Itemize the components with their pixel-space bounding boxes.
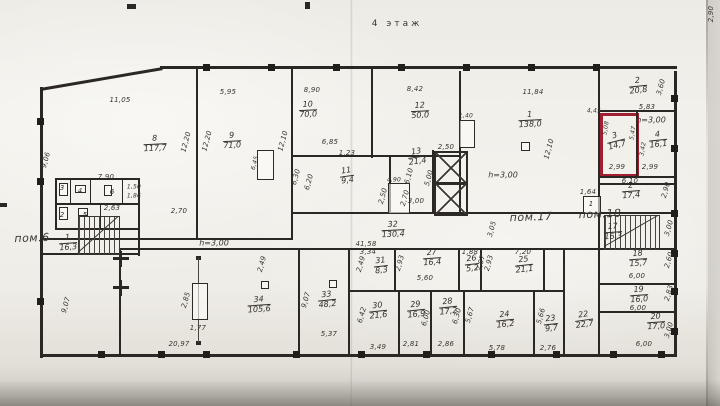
room-label-20: 2017,0: [646, 312, 665, 332]
ceiling-height-label: h=3,00: [199, 239, 229, 248]
wall-segment: [70, 178, 71, 204]
ventilation-shaft: [459, 120, 475, 148]
small-room-number: 3: [60, 184, 64, 192]
dimension-label: 5,37: [321, 330, 337, 338]
dimension-label: 2,49: [355, 255, 367, 273]
dimension-label: 1,86: [127, 193, 141, 200]
room-label-18: 1815,7: [628, 249, 647, 269]
small-room-number: 2: [60, 211, 64, 219]
floor-plan-drawing: 4 этаж 8117,7971,01070,01250,0119,41321,…: [0, 0, 720, 406]
wall-pilaster: [98, 351, 105, 358]
room-area: 20,8: [629, 85, 648, 96]
room-label-17: 1716,3: [603, 222, 622, 242]
room-area: 21,4: [408, 155, 427, 166]
dimension-label: 2,81: [403, 340, 419, 348]
zone-label: пом.17: [509, 210, 552, 224]
dimension-label: 5,83: [639, 103, 655, 111]
dimension-label: 5,95: [220, 88, 236, 96]
dimension-label: 41,58: [355, 240, 376, 248]
wall-segment: [119, 248, 676, 250]
wall-segment: [371, 68, 373, 158]
room-area: 16,3: [59, 242, 77, 252]
room-label-13: 1321,4: [407, 147, 427, 168]
dimension-label: 2,86: [438, 340, 454, 348]
wall-pilaster: [463, 64, 470, 71]
dimension-label: 6,85: [322, 138, 338, 146]
scanned-floor-plan-page: 4 этаж 8117,7971,01070,01250,0119,41321,…: [0, 0, 720, 406]
column-mark: [261, 281, 269, 289]
dimension-label: 9,07: [60, 296, 72, 314]
dimension-label: 5,60: [417, 274, 433, 282]
room-label-1: 1138,0: [518, 110, 542, 130]
dimension-label: 3,05: [486, 220, 498, 238]
wall-pilaster: [553, 351, 560, 358]
dimension-label: 6,00: [630, 304, 646, 312]
dimension-label: 1,50: [127, 184, 141, 191]
wall-segment: [119, 280, 122, 296]
wall-pilaster: [593, 64, 600, 71]
dimension-label: 2,85: [180, 291, 192, 309]
room-area: 16,0: [630, 294, 648, 304]
wall-segment: [196, 68, 198, 240]
dimension-label: 12,10: [542, 138, 555, 160]
dimension-label: 6,42: [356, 306, 368, 324]
room-label-8: 8117,7: [143, 134, 167, 154]
room-area: 21,6: [369, 310, 388, 321]
dimension-label: 20,97: [168, 340, 189, 348]
dimension-label: 9,07: [300, 291, 312, 309]
wall-segment: [0, 203, 7, 207]
wall-segment: [430, 290, 432, 355]
wall-segment-slanted: [40, 67, 163, 91]
ceiling-height-label: h=3,00: [488, 171, 518, 180]
wall-segment: [598, 71, 600, 213]
room-area: 138,0: [519, 119, 542, 129]
wall-pilaster: [488, 351, 495, 358]
wall-segment: [563, 250, 565, 355]
small-room-number: 4: [78, 187, 82, 195]
wall-segment: [543, 248, 545, 291]
room-label-2: 220,8: [628, 76, 648, 96]
room-area: 22,7: [575, 318, 594, 329]
dimension-label: 2,50: [438, 143, 454, 151]
room-area: 16,3: [604, 231, 622, 241]
wall-segment: [598, 110, 676, 112]
dimension-label: 4,90: [387, 177, 401, 184]
room-area: 15,7: [629, 258, 647, 268]
wall-pilaster: [203, 64, 210, 71]
staircase-left: [78, 216, 120, 255]
wall-pilaster: [671, 210, 678, 217]
dimension-label: 1,88: [462, 248, 478, 256]
wall-segment: [348, 248, 350, 355]
wall-pilaster: [671, 95, 678, 102]
wall-segment: [398, 290, 400, 355]
room-area: 8,3: [375, 265, 389, 275]
wall-segment: [463, 290, 465, 355]
room-label-11: 119,4: [339, 166, 356, 186]
room-label-33: 3348,2: [317, 290, 337, 310]
room-label-19: 1916,0: [629, 285, 648, 305]
wall-segment: [122, 178, 123, 204]
small-room-number: 6: [110, 188, 114, 196]
dimension-label: 2,70: [171, 207, 187, 215]
column-mark: [329, 280, 337, 288]
room-area: 16,2: [496, 319, 515, 330]
room-area: 130,4: [382, 229, 405, 239]
dimension-label: 2,99: [609, 163, 625, 171]
dimension-label: 5,78: [489, 344, 505, 352]
dimension-label: 2,49: [256, 255, 268, 273]
dimension-label: 12,10: [276, 130, 289, 152]
zone-label: пом.18: [578, 207, 621, 221]
dimension-label: 3,00: [408, 197, 424, 205]
dimension-label: 1,23: [339, 149, 355, 157]
wall-pilaster: [37, 298, 44, 305]
room-label-23: 239,7: [543, 314, 559, 334]
zone-label: пом.6: [14, 231, 50, 245]
wall-segment: [40, 87, 43, 358]
elevator-shaft-icon: [434, 151, 468, 185]
wall-pilaster: [268, 64, 275, 71]
wall-pilaster: [658, 351, 665, 358]
room-label-34: 34105,6: [247, 295, 271, 315]
room-area: 9,4: [341, 175, 355, 186]
room-area: 9,7: [545, 323, 559, 333]
wall-segment: [291, 68, 293, 240]
dimension-label: 11,05: [109, 96, 130, 104]
dimension-label: 8,42: [407, 85, 423, 93]
dimension-label: 2,99: [642, 163, 658, 171]
dimension-label: 6,00: [629, 272, 645, 280]
wall-pilaster: [610, 351, 617, 358]
room-area: 50,0: [411, 110, 429, 120]
room-area: 48,2: [318, 299, 337, 310]
wall-segment: [55, 203, 140, 205]
wall-pilaster: [293, 351, 300, 358]
room-area: 17,0: [647, 321, 665, 331]
wall-pilaster: [398, 64, 405, 71]
wall-segment: [458, 248, 460, 291]
dimension-label: 7,90: [98, 173, 114, 181]
room-area: 16,4: [423, 257, 441, 267]
dimension-label: 2,90: [707, 6, 715, 22]
dimension-label: 1,40: [459, 113, 473, 120]
wall-segment: [348, 290, 565, 292]
ceiling-height-label: h=3,00: [636, 116, 666, 125]
floor-title: 4 этаж: [372, 19, 422, 29]
room-label-30: 3021,6: [368, 301, 388, 321]
dimension-label: 5,67: [464, 306, 476, 324]
dimension-label: 6,00: [636, 340, 652, 348]
small-room-number: 5: [83, 211, 87, 219]
wall-pilaster: [671, 145, 678, 152]
room-label-27: 2716,4: [422, 248, 441, 268]
ventilation-shaft: [257, 150, 274, 180]
dimension-label: 1,77: [190, 324, 206, 332]
room-area: 16,1: [649, 139, 668, 150]
room-area: 70,0: [299, 109, 317, 119]
dimension-label: 3,49: [370, 343, 386, 351]
dimension-label: 12,20: [179, 131, 192, 153]
wall-segment: [305, 2, 310, 9]
elevator-shaft-icon: [434, 182, 468, 216]
room-label-22: 2222,7: [574, 310, 594, 331]
room-area: 105,6: [248, 304, 271, 315]
dimension-label: 3,60: [655, 78, 667, 96]
wall-pilaster: [423, 351, 430, 358]
room-label-9: 971,0: [223, 131, 242, 151]
dimension-label: 6,10: [622, 177, 638, 185]
room-area: 71,0: [223, 140, 241, 150]
room-label-1: 116,3: [58, 233, 77, 253]
room-label-31: 318,3: [373, 256, 389, 276]
dimension-label: 8,90: [304, 86, 320, 94]
dimension-label: 7,20: [515, 248, 531, 256]
room-label-24: 2416,2: [495, 310, 515, 330]
wall-pilaster: [358, 351, 365, 358]
dimension-label: 11,84: [522, 88, 543, 96]
room-label-12: 1250,0: [411, 101, 430, 121]
dimension-label: 6,10: [403, 167, 415, 185]
room-label-10: 1070,0: [299, 100, 318, 120]
room-area: 17,4: [622, 190, 640, 200]
room-label-32: 32130,4: [381, 220, 405, 240]
wall-pilaster: [528, 64, 535, 71]
room-area: 21,1: [515, 264, 534, 275]
wall-pilaster: [37, 178, 44, 185]
dimension-label: 2,63: [104, 204, 120, 212]
dimension-label: 6,20: [303, 173, 315, 191]
column-mark: [521, 142, 530, 151]
room-area: 117,7: [144, 143, 167, 153]
dimension-label: 2,76: [540, 344, 556, 352]
dimension-label: 3,34: [360, 248, 376, 256]
wall-segment: [90, 178, 91, 204]
wall-segment: [127, 4, 136, 9]
wall-segment: [298, 250, 300, 355]
wall-pilaster: [37, 118, 44, 125]
dimension-label: 3,42: [638, 141, 647, 156]
wall-pilaster: [158, 351, 165, 358]
dimension-label: 1,64: [580, 188, 596, 196]
wall-pilaster: [333, 64, 340, 71]
dimension-label: 4,45: [587, 108, 601, 115]
structural-column: [192, 283, 208, 320]
wall-pilaster: [203, 351, 210, 358]
room-label-25: 2521,1: [514, 255, 534, 275]
room-label-4: 416,1: [648, 130, 668, 150]
dimension-label: 12,20: [200, 130, 213, 152]
